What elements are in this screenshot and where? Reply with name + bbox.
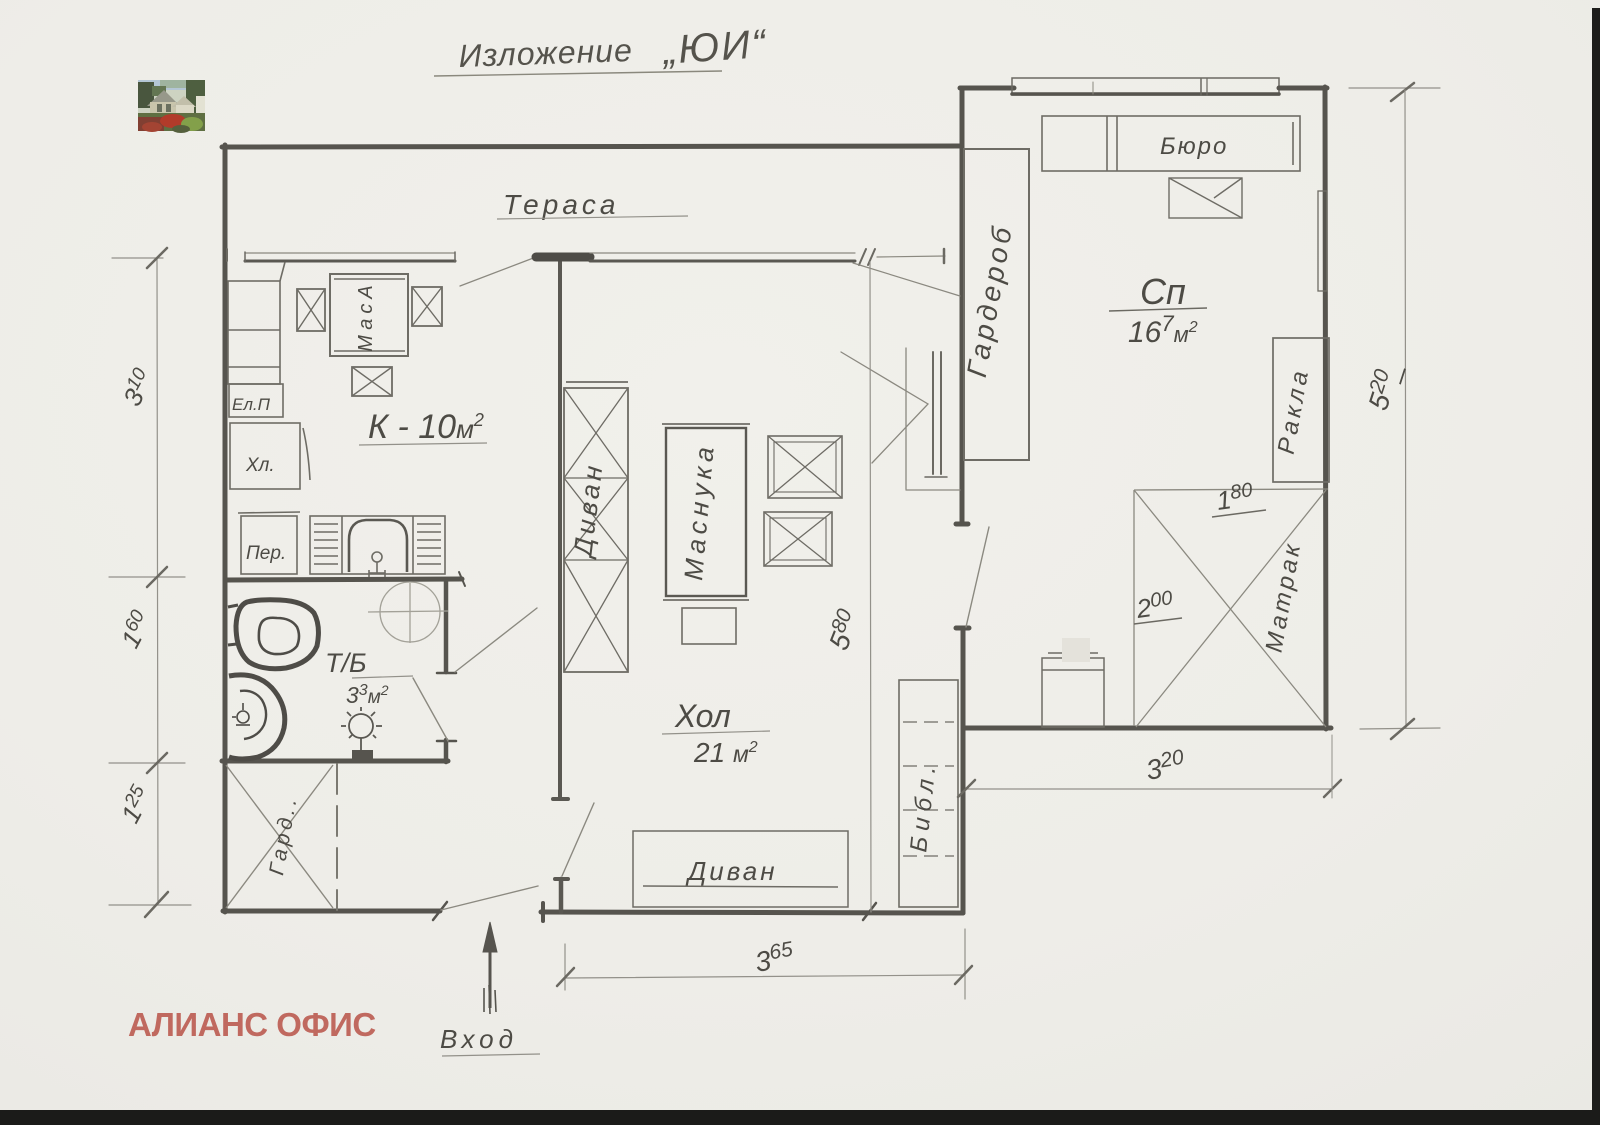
svg-text:Диван: Диван — [685, 856, 778, 886]
svg-text:Хл.: Хл. — [245, 455, 275, 476]
svg-text:МасА: МасА — [355, 280, 377, 351]
svg-text:21 м2: 21 м2 — [693, 737, 758, 768]
svg-text:Хол: Хол — [674, 698, 731, 734]
svg-text:„ЮИ“: „ЮИ“ — [660, 22, 770, 73]
svg-text:Сп: Сп — [1140, 271, 1186, 312]
svg-text:Бюро: Бюро — [1160, 133, 1228, 160]
svg-text:Тераса: Тераса — [503, 189, 619, 220]
svg-text:Т/Б: Т/Б — [325, 648, 367, 678]
svg-text:Вход: Вход — [440, 1024, 518, 1054]
svg-text:К - 10м2: К - 10м2 — [368, 408, 484, 446]
svg-text:Изложение: Изложение — [458, 32, 633, 74]
svg-text:АЛИАНС ОФИС: АЛИАНС ОФИС — [128, 1006, 376, 1043]
svg-text:Ел.П: Ел.П — [232, 395, 271, 414]
svg-text:Пер.: Пер. — [246, 543, 286, 564]
